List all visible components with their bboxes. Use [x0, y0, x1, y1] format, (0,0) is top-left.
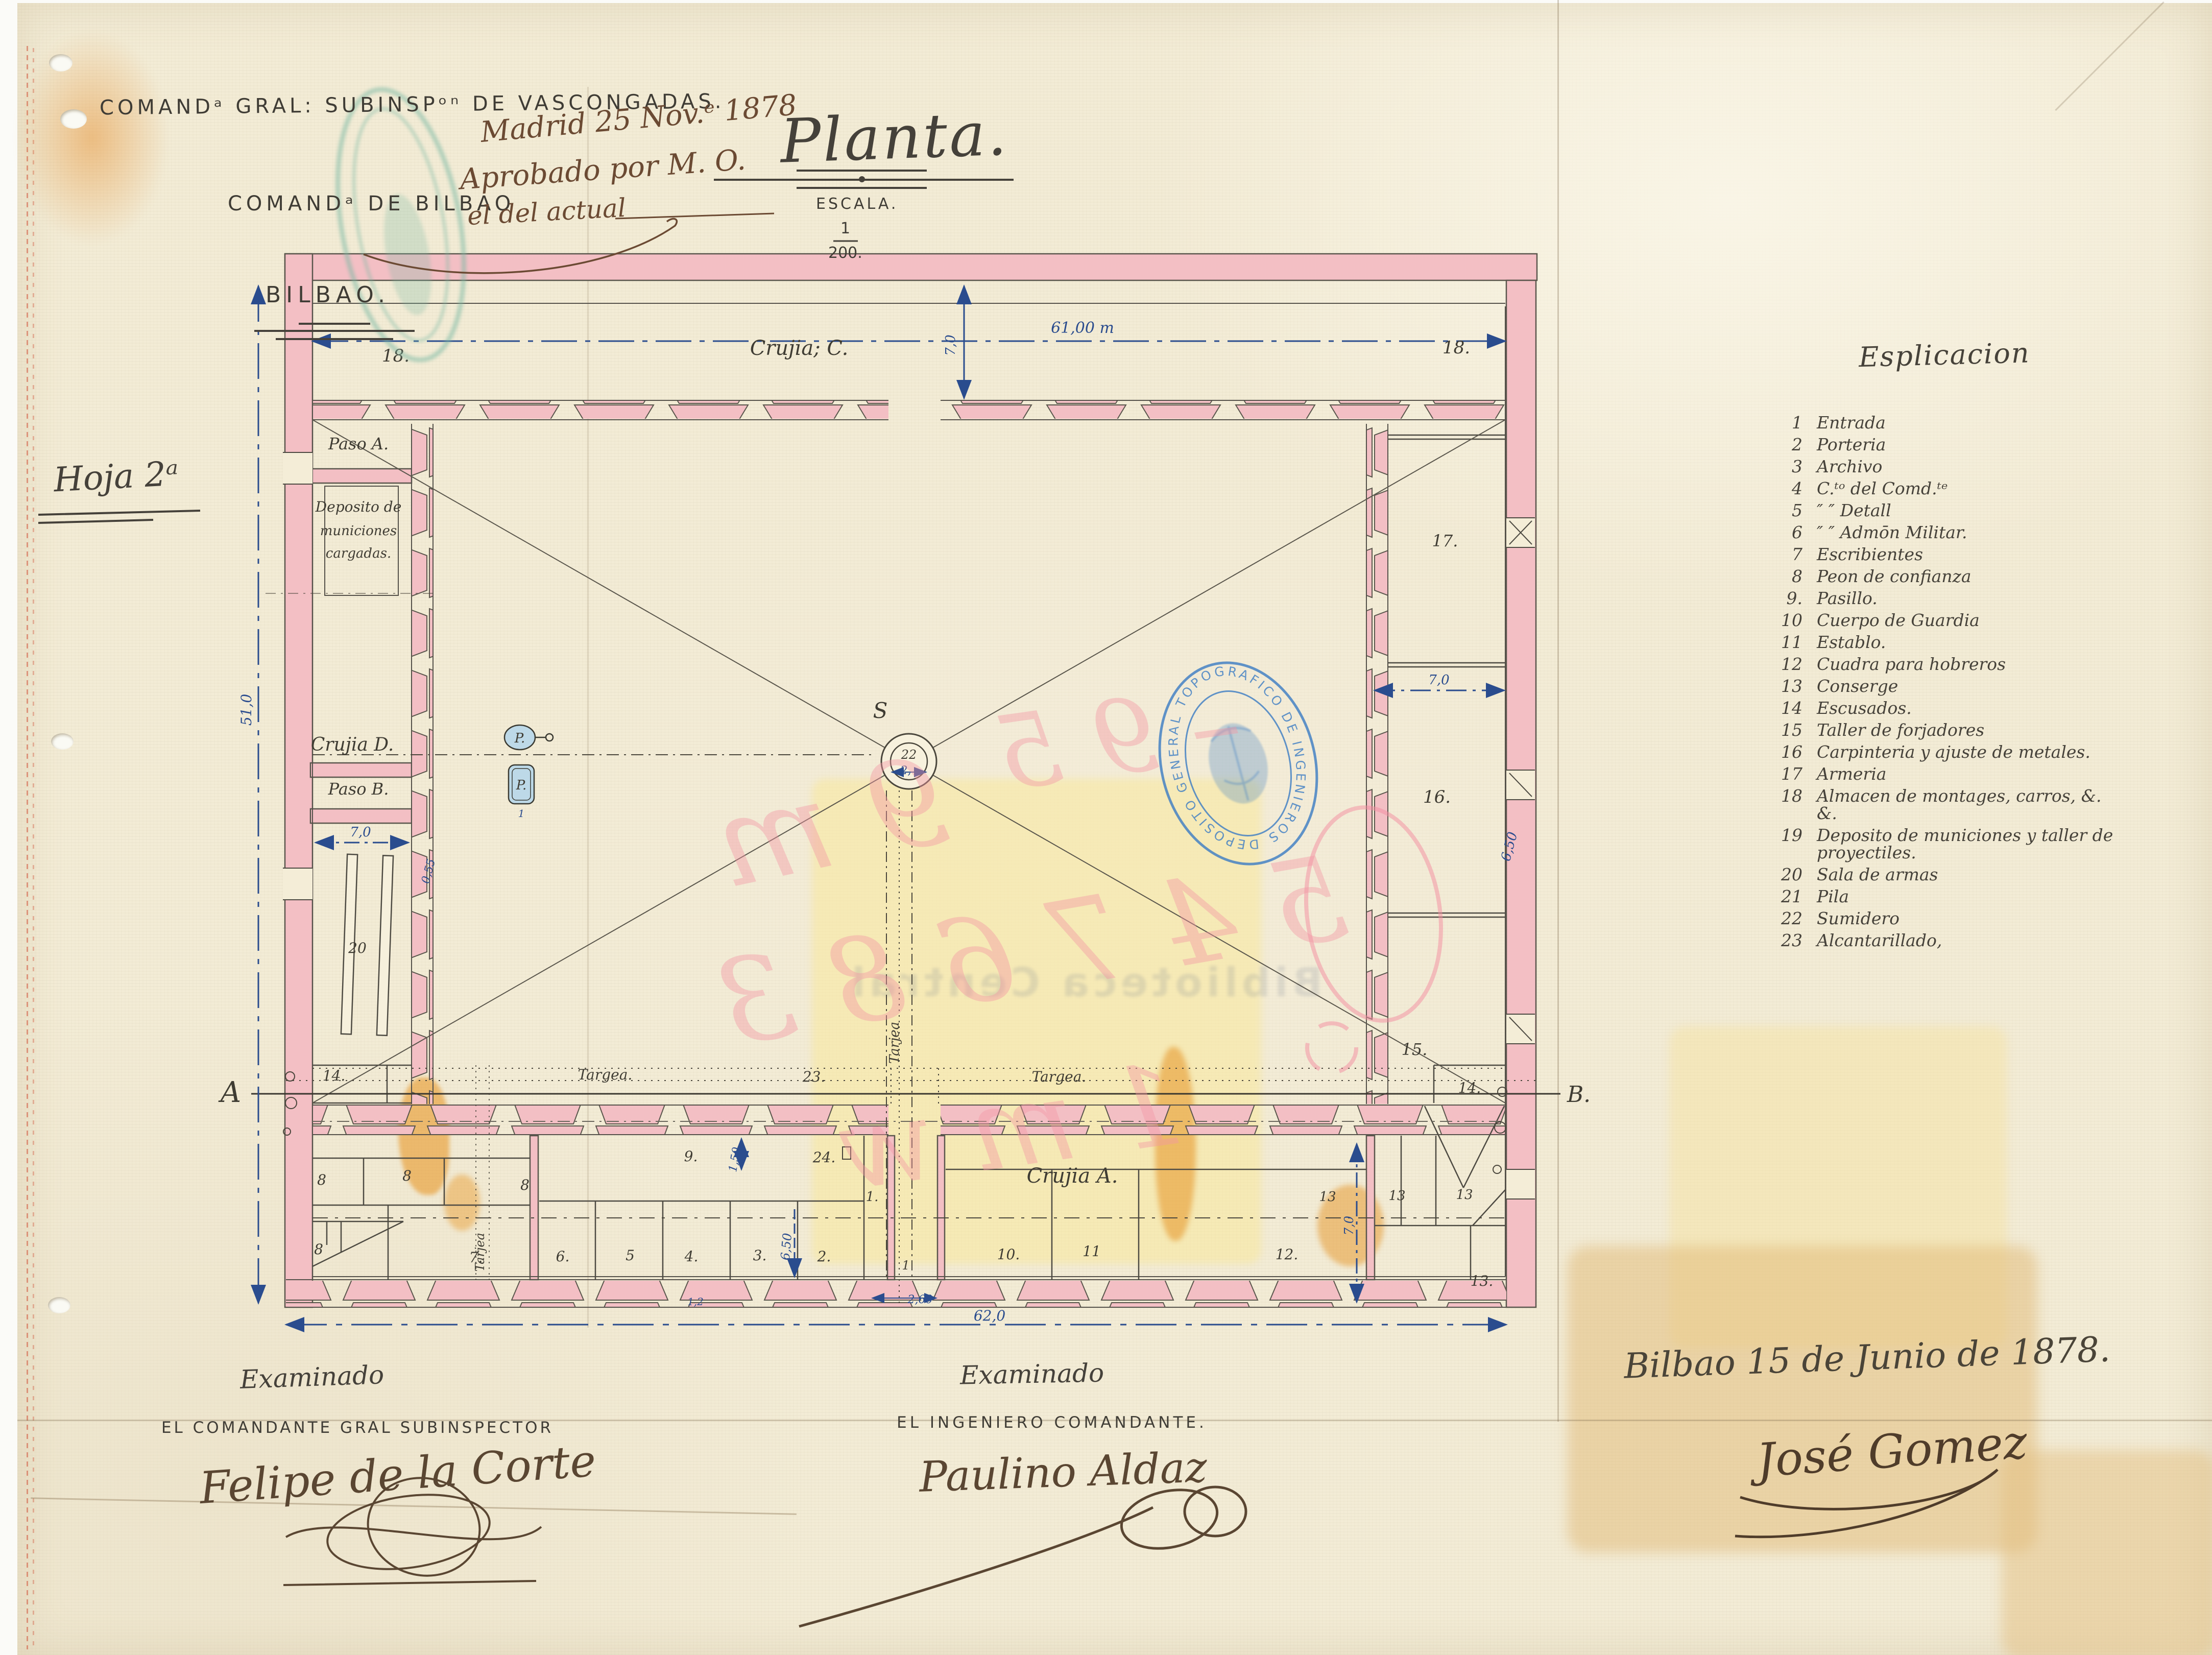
- plan-label: 61,00 m: [1051, 319, 1114, 337]
- plan-label: 22: [901, 748, 917, 762]
- legend-item-label: ″ ″ Detall: [1817, 502, 2123, 519]
- plan-label: P.: [514, 731, 525, 746]
- header-bilbao: BILBAO.: [266, 282, 390, 308]
- legend-item-label: Deposito de municiones y taller de proye…: [1817, 827, 2123, 861]
- legend-item: 5 ″ ″ Detall: [1772, 502, 2175, 519]
- examined-center: Examinado: [960, 1358, 1104, 1390]
- legend-item-label: Sumidero: [1817, 910, 2123, 927]
- legend-item-number: 4: [1772, 480, 1802, 497]
- legend-item-label: Pasillo.: [1817, 590, 2123, 607]
- legend-item: 17 Armeria: [1772, 765, 2175, 783]
- plan-label: 7,0: [350, 825, 371, 840]
- legend-item-number: 22: [1772, 910, 1802, 927]
- plan-label: 2,: [900, 764, 911, 777]
- plan-label: 12.: [1276, 1246, 1299, 1263]
- legend-item-number: 11: [1772, 634, 1802, 651]
- plan-label: Paso A.: [328, 434, 389, 453]
- plan-label: Tarjea: [887, 1022, 902, 1064]
- plan-label: 1: [518, 807, 525, 820]
- signature-center: Paulino Aldaz: [919, 1443, 1208, 1502]
- legend-item: 13 Conserge: [1772, 678, 2175, 695]
- legend-item-label: Escusados.: [1817, 700, 2123, 717]
- plan-label: 1,2: [687, 1296, 704, 1308]
- legend-item-label: Entrada: [1817, 414, 2123, 431]
- legend: Esplicacion 1 Entrada 2 Porteria 3 Archi…: [1772, 337, 2175, 954]
- legend-item-number: 3: [1772, 458, 1802, 475]
- plan-label: 17.: [1432, 531, 1458, 550]
- plan-label: 9.: [684, 1148, 698, 1165]
- legend-item-number: 5: [1772, 502, 1802, 519]
- plan-label: B.: [1567, 1082, 1591, 1108]
- door-openings: [283, 452, 1535, 1199]
- legend-item-number: 10: [1772, 612, 1802, 629]
- scale-numerator: 1: [840, 220, 850, 237]
- legend-item-label: Archivo: [1817, 458, 2123, 475]
- legend-item-number: 6: [1772, 524, 1802, 541]
- plan-label: Paso B.: [328, 779, 389, 799]
- plan-label: A: [218, 1076, 241, 1109]
- examined-left: Examinado: [239, 1360, 384, 1395]
- plan-label: Targea.: [1032, 1068, 1087, 1085]
- scale-denominator: 200.: [828, 244, 862, 262]
- pila-markers: [504, 725, 553, 804]
- plan-label: 15.: [1402, 1040, 1428, 1059]
- plan-label: 14.: [323, 1067, 346, 1084]
- legend-item: 1 Entrada: [1772, 414, 2175, 431]
- plan-label: 11: [1083, 1243, 1101, 1260]
- document-scan: Biblioteca Central: [0, 0, 2212, 1655]
- plan-label: 7,0: [943, 334, 958, 355]
- legend-item: 7 Escribientes: [1772, 546, 2175, 563]
- legend-item: 23 Alcantarillado,: [1772, 932, 2175, 949]
- plan-label: 6.: [556, 1248, 570, 1265]
- legend-item: 9. Pasillo.: [1772, 590, 2175, 607]
- legend-item-number: 14: [1772, 700, 1802, 717]
- legend-item-label: C.ᵗᵒ del Comd.ᵗᵉ: [1817, 480, 2123, 497]
- plan-label: 1.: [866, 1189, 879, 1205]
- legend-item-number: 15: [1772, 722, 1802, 739]
- legend-item: 8 Peon de confianza: [1772, 568, 2175, 585]
- legend-item-number: 9.: [1772, 590, 1802, 607]
- plan-label: municiones: [320, 523, 397, 539]
- legend-item-label: Alcantarillado,: [1817, 932, 2123, 949]
- legend-item: 18 Almacen de montages, carros, &. &.: [1772, 787, 2175, 822]
- legend-item: 3 Archivo: [1772, 458, 2175, 475]
- plan-label: 3.: [753, 1247, 767, 1264]
- plan-label: 1: [902, 1258, 909, 1273]
- plan-label: 16.: [1423, 787, 1451, 807]
- plan-label: 51,0: [238, 694, 255, 726]
- plan-label: 7,0: [1428, 673, 1449, 688]
- legend-item-number: 21: [1772, 888, 1802, 905]
- legend-item-number: 12: [1772, 656, 1802, 673]
- legend-item: 16 Carpinteria y ajuste de metales.: [1772, 743, 2175, 761]
- plan-label: 2,60: [907, 1293, 933, 1306]
- plan-label: Deposito de: [315, 498, 402, 515]
- plan-label: 23.: [802, 1068, 826, 1085]
- plan-label: 8: [402, 1167, 412, 1184]
- legend-item-label: Escribientes: [1817, 546, 2123, 563]
- plan-label: 7.: [469, 1249, 483, 1266]
- plan-label: 10.: [997, 1246, 1020, 1263]
- plan-label: 18.: [1442, 338, 1470, 358]
- legend-item-label: Carpinteria y ajuste de metales.: [1817, 743, 2123, 761]
- legend-title: Esplicacion: [1858, 333, 2175, 373]
- legend-item: 19 Deposito de municiones y taller de pr…: [1772, 827, 2175, 861]
- legend-item-number: 23: [1772, 932, 1802, 949]
- role-center: EL INGENIERO COMANDANTE.: [878, 1413, 1225, 1432]
- plan-label: S: [873, 698, 888, 723]
- legend-item-label: Taller de forjadores: [1817, 722, 2123, 739]
- plan-label: 24.: [812, 1149, 836, 1166]
- plan-label: 5: [626, 1247, 635, 1264]
- legend-item: 15 Taller de forjadores: [1772, 722, 2175, 739]
- scale-label: ESCALA.: [816, 195, 898, 213]
- legend-item-label: Conserge: [1817, 678, 2123, 695]
- plan-label: 8: [314, 1241, 323, 1258]
- legend-item-label: Pila: [1817, 888, 2123, 905]
- legend-item-number: 19: [1772, 827, 1802, 844]
- legend-item: 22 Sumidero: [1772, 910, 2175, 927]
- legend-item-label: Peon de confianza: [1817, 568, 2123, 585]
- legend-item-number: 8: [1772, 568, 1802, 585]
- plan-label: 13.: [1471, 1273, 1494, 1289]
- drawing-title: Planta.: [779, 98, 1009, 177]
- legend-item-label: Establo.: [1817, 634, 2123, 651]
- legend-item: 20 Sala de armas: [1772, 866, 2175, 883]
- flourishes: [38, 171, 1998, 1626]
- plan-label: 2.: [817, 1248, 831, 1265]
- plan-label: 8: [520, 1177, 530, 1193]
- legend-item-label: ″ ″ Admōn Militar.: [1817, 524, 2123, 541]
- plan-label: 20: [348, 940, 367, 956]
- legend-item-number: 1: [1772, 414, 1802, 431]
- legend-item: 4 C.ᵗᵒ del Comd.ᵗᵉ: [1772, 480, 2175, 497]
- plan-label: 14.: [1458, 1080, 1481, 1096]
- plan-label: 8: [317, 1171, 326, 1188]
- legend-item: 21 Pila: [1772, 888, 2175, 905]
- plan-label: 7,0: [1342, 1216, 1356, 1235]
- legend-item-number: 7: [1772, 546, 1802, 563]
- blue-stamp: DEPOSITO GENERAL TOPOGRAFICO DE INGENIER…: [1138, 645, 1338, 882]
- legend-list: 1 Entrada 2 Porteria 3 Archivo 4 C.ᵗᵒ de…: [1772, 414, 2175, 949]
- plan-label: 4.: [684, 1248, 699, 1265]
- legend-item-label: Sala de armas: [1817, 866, 2123, 883]
- sheet-number: Hoja 2ᵃ: [53, 454, 180, 500]
- legend-item-number: 2: [1772, 436, 1802, 453]
- legend-item: 14 Escusados.: [1772, 700, 2175, 717]
- plan-label: Targea.: [578, 1066, 633, 1083]
- legend-item-label: Almacen de montages, carros, &. &.: [1817, 787, 2123, 822]
- legend-item: 2 Porteria: [1772, 436, 2175, 453]
- plan-pier-walls: [286, 400, 1506, 1307]
- plan-label: 13: [1456, 1187, 1473, 1203]
- green-stamp: [319, 80, 483, 370]
- legend-item-number: 17: [1772, 765, 1802, 783]
- legend-item-label: Porteria: [1817, 436, 2123, 453]
- legend-item-number: 16: [1772, 743, 1802, 761]
- plan-label: 62,0: [974, 1307, 1005, 1324]
- drain-lines: [266, 593, 1537, 1307]
- legend-item-label: Cuerpo de Guardia: [1817, 612, 2123, 629]
- legend-item-number: 18: [1772, 787, 1802, 805]
- plan-partitions: [312, 435, 1505, 1280]
- legend-item: 10 Cuerpo de Guardia: [1772, 612, 2175, 629]
- plan-label: cargadas.: [326, 546, 391, 561]
- plan-wall-lines: [286, 280, 1506, 1307]
- plan-label: 13: [1388, 1188, 1405, 1204]
- legend-item-label: Armeria: [1817, 765, 2123, 783]
- plan-label: Crujia; C.: [750, 337, 849, 360]
- plan-label: Crujia A.: [1027, 1164, 1118, 1188]
- plan-label: 6,50: [778, 1232, 795, 1261]
- plan-label: P.: [516, 778, 527, 793]
- legend-item: 6 ″ ″ Admōn Militar.: [1772, 524, 2175, 541]
- legend-item-number: 20: [1772, 866, 1802, 883]
- legend-item: 11 Establo.: [1772, 634, 2175, 651]
- legend-item-number: 13: [1772, 678, 1802, 695]
- plan-label: Crujia D.: [311, 734, 394, 755]
- role-left: EL COMANDANTE GRAL SUBINSPECTOR: [158, 1419, 557, 1437]
- legend-item: 12 Cuadra para hobreros: [1772, 656, 2175, 673]
- plan-label: 13: [1319, 1189, 1336, 1205]
- legend-item-label: Cuadra para hobreros: [1817, 656, 2123, 673]
